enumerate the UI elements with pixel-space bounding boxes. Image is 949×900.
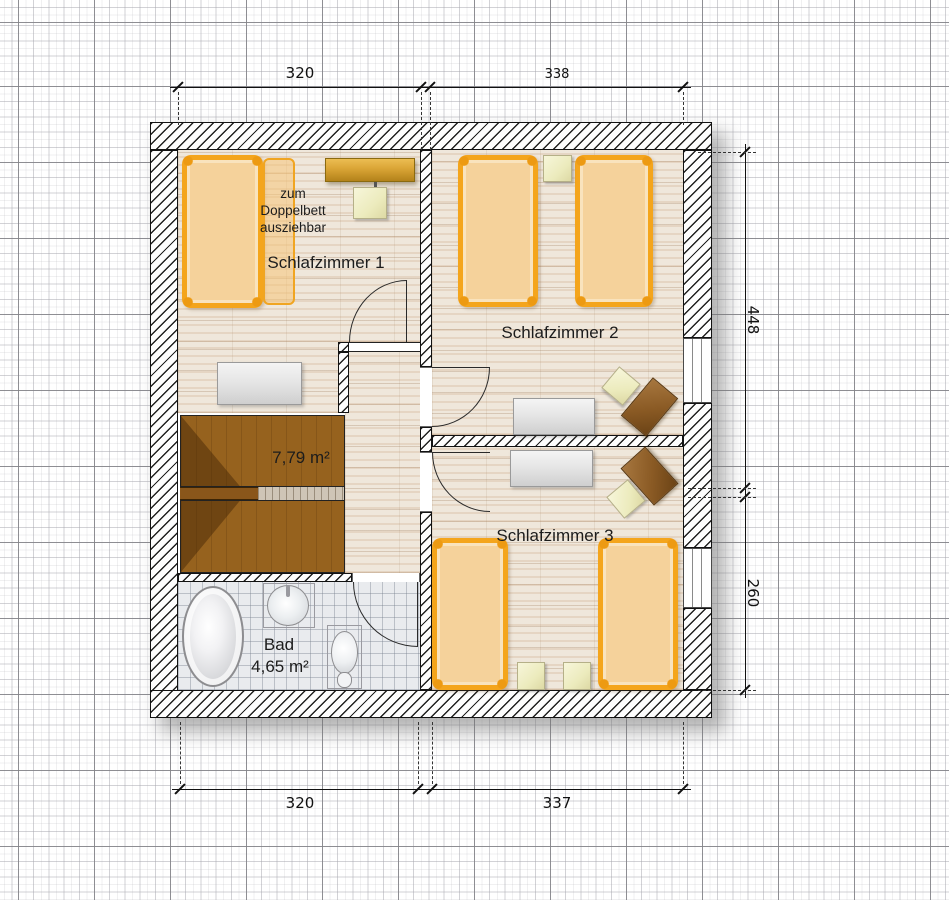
outer-wall-right-middle <box>683 403 712 548</box>
room-note-doppelbett: zum Doppelbett ausziehbar <box>243 186 343 237</box>
dim-label-right-upper: 448 <box>744 290 762 350</box>
floor-plan-canvas: 7,79 m² Bad 4,65 m² <box>0 0 949 900</box>
dim-extension <box>698 690 756 691</box>
dresser-schlafzimmer1 <box>217 362 302 405</box>
outer-wall-top <box>150 122 712 150</box>
outer-wall-left <box>150 150 178 718</box>
dim-label-bottom-left: 320 <box>250 794 350 812</box>
sideboard-schlafzimmer1 <box>325 158 415 182</box>
interior-wall-middle-mid <box>420 427 432 452</box>
dim-label-top-right: 338 <box>507 67 607 82</box>
door-opening-schlafzimmer2 <box>420 367 432 427</box>
desk-schlafzimmer2 <box>513 398 595 435</box>
interior-wall-middle-lower <box>420 512 432 690</box>
interior-wall-middle-upper <box>420 150 432 367</box>
desk-schlafzimmer3 <box>510 450 593 487</box>
dim-extension <box>418 722 419 784</box>
interior-wall-corner-piece <box>338 342 349 352</box>
room-label-schlafzimmer1: Schlafzimmer 1 <box>240 252 412 273</box>
dim-label-top-left: 320 <box>250 64 350 82</box>
stairs-area-label: 7,79 m² <box>251 447 351 468</box>
interior-wall-corridor-left <box>338 352 349 413</box>
bathroom-area-label: 4,65 m² <box>230 656 330 677</box>
dim-extension <box>688 488 756 489</box>
dim-extension <box>698 152 756 153</box>
dim-label-bottom-right: 337 <box>507 794 607 812</box>
bed-schlafzimmer2-left <box>458 155 538 307</box>
toilet-base <box>337 672 352 688</box>
bed-schlafzimmer2-right <box>575 155 653 307</box>
dim-extension <box>688 497 756 498</box>
window-schlafzimmer2 <box>683 338 712 403</box>
room-label-schlafzimmer3: Schlafzimmer 3 <box>469 525 641 546</box>
outer-wall-right-upper <box>683 150 712 338</box>
bed-schlafzimmer3-left <box>432 538 508 690</box>
outer-wall-right-lower <box>683 608 712 690</box>
corridor-floor <box>345 352 420 573</box>
nightstand-schlafzimmer3-left <box>517 662 545 690</box>
dim-extension <box>180 722 181 784</box>
chair-schlafzimmer1 <box>353 187 387 219</box>
dim-label-right-lower: 260 <box>744 563 762 623</box>
room-label-schlafzimmer2: Schlafzimmer 2 <box>474 322 646 343</box>
bed-schlafzimmer3-right <box>598 538 678 690</box>
dim-extension <box>683 92 684 125</box>
toilet-bowl <box>331 631 358 674</box>
dim-extension <box>432 722 433 784</box>
sink-tap <box>286 585 290 597</box>
dim-extension <box>178 92 179 125</box>
dim-extension <box>421 92 422 150</box>
bathroom-label: Bad <box>234 634 324 655</box>
door-opening-bathroom <box>352 573 420 582</box>
dim-extension <box>430 92 431 150</box>
nightstand-schlafzimmer3-right <box>563 662 591 690</box>
stairs-landing-edge <box>180 487 258 500</box>
interior-wall-bathroom-top <box>178 573 352 582</box>
outer-wall-bottom <box>150 690 712 718</box>
dim-extension <box>683 722 684 784</box>
nightstand-schlafzimmer2 <box>543 155 572 182</box>
door-opening-schlafzimmer3 <box>420 452 432 512</box>
window-schlafzimmer3 <box>683 548 712 608</box>
door-opening-schlafzimmer1 <box>349 342 420 352</box>
